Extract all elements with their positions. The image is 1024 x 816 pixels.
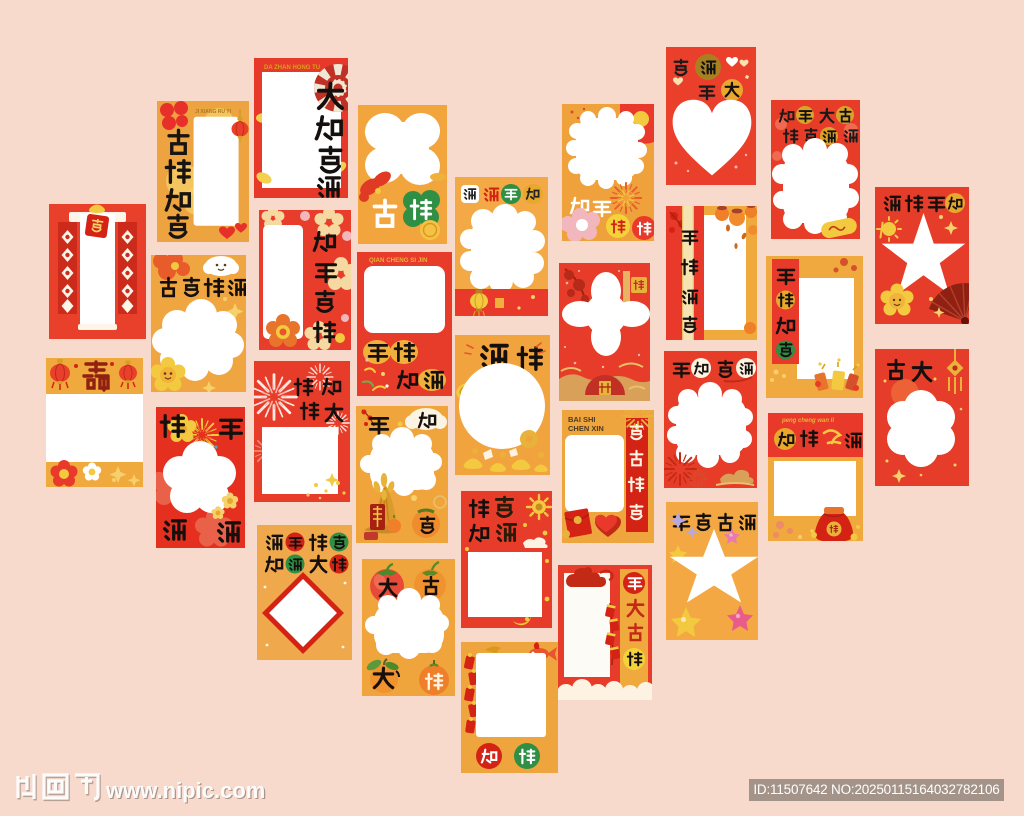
svg-text:QIAN CHENG SI JIN: QIAN CHENG SI JIN [369, 257, 428, 264]
svg-text:www.nipic.com: www.nipic.com [105, 778, 265, 803]
svg-text:CHEN XIN: CHEN XIN [568, 424, 604, 433]
svg-text:peng cheng wan li: peng cheng wan li [781, 418, 834, 424]
svg-text:BAI SHI: BAI SHI [568, 415, 596, 424]
svg-text:JI XIANG RU YI: JI XIANG RU YI [195, 109, 232, 115]
svg-text:DA ZHAN HONG TU: DA ZHAN HONG TU [264, 65, 320, 71]
